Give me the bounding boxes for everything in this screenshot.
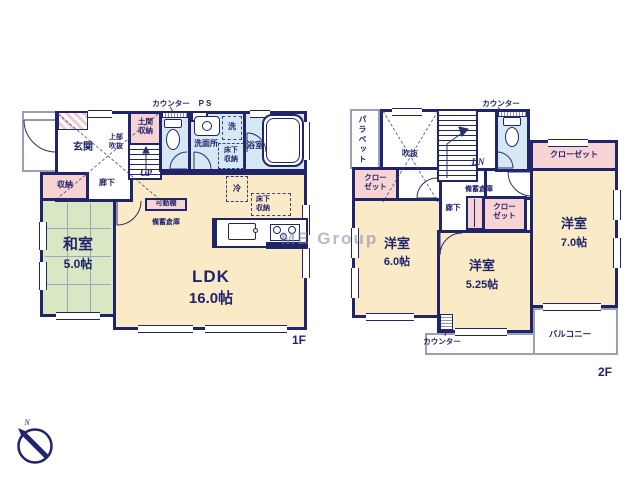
void-dashed-lines xyxy=(58,111,438,202)
stair-direction-arrows xyxy=(143,127,468,178)
door-arcs xyxy=(24,120,532,255)
watermark: ME Group xyxy=(281,229,378,249)
compass-icon: N xyxy=(18,418,52,463)
compass-north-label: N xyxy=(23,418,30,427)
floor-plan-page: カウンター PS 玄関 上部吹抜 土間収納 UP 洗面所 洗 床下収納 浴室 廊… xyxy=(0,0,640,480)
label-pointer-lines xyxy=(170,107,502,336)
